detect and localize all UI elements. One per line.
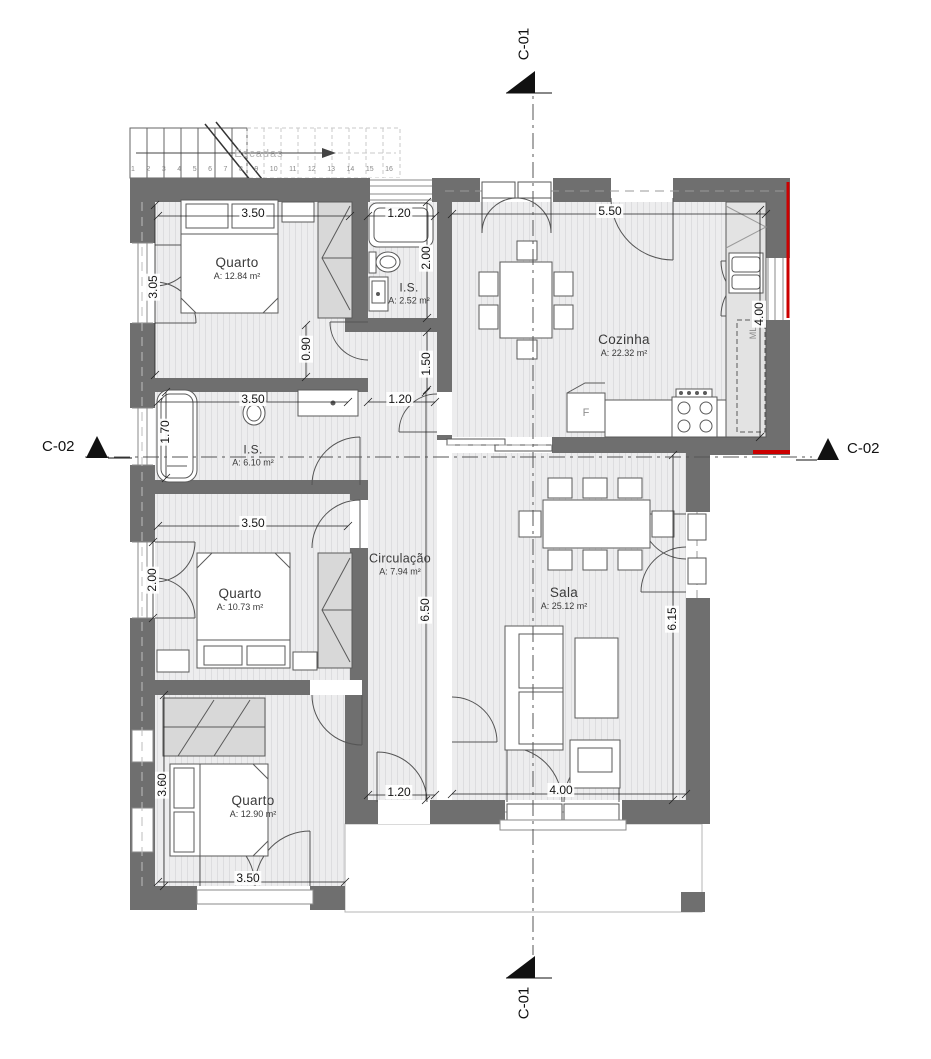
dim-is1-depth: 2.00 bbox=[419, 244, 433, 271]
stair-tread-number: 8 bbox=[239, 166, 243, 173]
terrace bbox=[345, 824, 705, 912]
wardrobe-quarto2 bbox=[318, 553, 352, 668]
floor-plan: Escadas 12345678910111213141516 C-01 C-0… bbox=[0, 0, 931, 1059]
stair-tread-number: 16 bbox=[385, 166, 393, 173]
sink-is1 bbox=[369, 277, 388, 311]
sofa bbox=[505, 626, 563, 750]
stair-tread-number: 12 bbox=[308, 166, 316, 173]
side-table bbox=[575, 638, 618, 718]
stair-tread-number: 7 bbox=[224, 166, 228, 173]
section-marker-c01-bottom bbox=[506, 956, 552, 978]
section-label-c02-right: C-02 bbox=[847, 440, 880, 457]
washer-label: ML bbox=[748, 327, 758, 340]
dim-quarto2-window: 2.00 bbox=[145, 566, 159, 593]
dim-sala-depth: 6.15 bbox=[665, 605, 679, 632]
dim-hall-width-top: 1.20 bbox=[386, 392, 413, 406]
stair-tread-number: 15 bbox=[366, 166, 374, 173]
stair-tread-number: 10 bbox=[270, 166, 278, 173]
section-label-c02-left: C-02 bbox=[42, 438, 75, 455]
room-label-quarto3: Quarto A: 12.90 m² bbox=[230, 793, 277, 819]
room-label-cozinha: Cozinha A: 22.32 m² bbox=[598, 332, 650, 358]
tv-unit bbox=[570, 740, 620, 788]
stair-tread-number: 4 bbox=[177, 166, 181, 173]
dim-is2-width: 3.50 bbox=[239, 392, 266, 406]
section-label-c01-bottom: C-01 bbox=[516, 987, 533, 1020]
room-label-circulacao: Circulação A: 7.94 m² bbox=[369, 552, 431, 577]
basin-is2 bbox=[298, 390, 358, 416]
stair-tread-numbers: 12345678910111213141516 bbox=[131, 166, 393, 173]
dim-hall-width-bottom: 1.20 bbox=[385, 785, 412, 799]
stair-tread-number: 5 bbox=[193, 166, 197, 173]
stair-tread-number: 6 bbox=[208, 166, 212, 173]
stair-tread-number: 2 bbox=[146, 166, 150, 173]
stair-tread-number: 11 bbox=[289, 166, 296, 173]
section-label-c01-top: C-01 bbox=[516, 28, 533, 61]
toilet-is1 bbox=[369, 252, 400, 273]
stair-tread-number: 13 bbox=[327, 166, 335, 173]
wardrobe-quarto3 bbox=[163, 698, 265, 756]
plan-drawing bbox=[0, 0, 931, 1059]
stair-tread-number: 1 bbox=[131, 166, 135, 173]
stair-tread-number: 9 bbox=[254, 166, 258, 173]
dim-quarto1-depth: 3.05 bbox=[146, 273, 160, 300]
section-marker-c01-top bbox=[506, 71, 552, 93]
dim-quarto3-width: 3.50 bbox=[234, 871, 261, 885]
dim-cozinha-width: 5.50 bbox=[596, 204, 623, 218]
room-label-quarto1: Quarto A: 12.84 m² bbox=[214, 255, 261, 281]
dim-passage-quarto1: 0.90 bbox=[299, 335, 313, 362]
stair-tread-number: 3 bbox=[162, 166, 166, 173]
dim-sala-door-width: 4.00 bbox=[547, 783, 574, 797]
fridge-label: F bbox=[583, 407, 590, 419]
dim-is1-width: 1.20 bbox=[385, 206, 412, 220]
dim-quarto1-width: 3.50 bbox=[239, 206, 266, 220]
dim-is2-depth: 1.70 bbox=[158, 418, 172, 445]
room-label-is2: I.S. A: 6.10 m² bbox=[232, 443, 274, 468]
dim-hall-length: 6.50 bbox=[418, 596, 432, 623]
dim-quarto2-width: 3.50 bbox=[239, 516, 266, 530]
dim-hall-top: 1.50 bbox=[419, 350, 433, 377]
dim-quarto3-depth: 3.60 bbox=[155, 771, 169, 798]
section-marker-c02-left bbox=[86, 436, 132, 458]
room-label-is1: I.S. A: 2.52 m² bbox=[388, 281, 430, 306]
stairs-label: Escadas bbox=[234, 148, 283, 160]
dim-cozinha-depth: 4.00 bbox=[752, 300, 766, 327]
stair-tread-number: 14 bbox=[347, 166, 355, 173]
room-label-sala: Sala A: 25.12 m² bbox=[541, 585, 588, 611]
room-label-quarto2: Quarto A: 10.73 m² bbox=[217, 586, 264, 612]
